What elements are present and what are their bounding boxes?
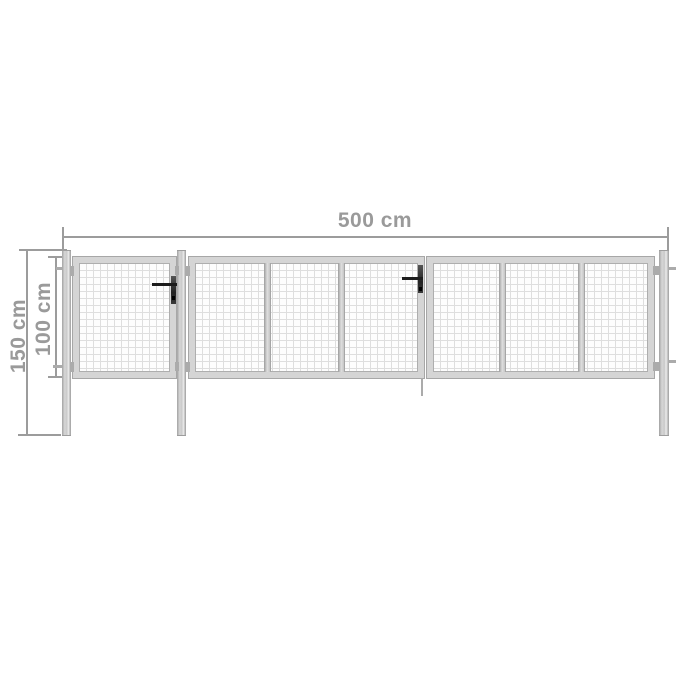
total-height-dimension-tick-bottom [18, 434, 61, 436]
width-dimension-label: 500 cm [295, 210, 455, 232]
gate-vertical-bar [499, 263, 506, 372]
hinge-pin [175, 266, 179, 275]
gate-vertical-bar [264, 263, 271, 372]
gate-post-middle [177, 250, 186, 436]
width-dimension-tick-left [62, 227, 64, 250]
gate-post-right [659, 250, 669, 436]
double-gate-left-leaf [189, 257, 424, 378]
double-gate-right-leaf [427, 257, 654, 378]
hinge-pin [175, 362, 179, 371]
double-gate-handle [402, 277, 423, 280]
hinge-pin [653, 362, 659, 371]
hinge-pin [56, 267, 63, 270]
width-dimension-line [63, 236, 669, 238]
hinge-pin [71, 362, 74, 372]
hinge-pin [71, 266, 74, 276]
hinge-pin [668, 360, 676, 363]
double-gate-keyhole [419, 287, 422, 291]
pedestrian-gate-handle [152, 283, 177, 286]
total-height-dimension-tick-top [19, 249, 67, 251]
pedestrian-gate-leaf [73, 257, 176, 378]
hinge-pin [653, 266, 659, 275]
pedestrian-gate-keyhole [172, 296, 175, 300]
total-height-dimension-line [26, 250, 28, 436]
gate-vertical-bar [578, 263, 585, 372]
gate-height-dimension-line [55, 257, 57, 378]
hinge-pin [186, 362, 190, 372]
hinge-pin [668, 267, 676, 270]
hinge-pin [53, 365, 63, 368]
product-dimension-diagram: 500 cm 150 cm 100 cm [0, 0, 685, 685]
width-dimension-tick-right [667, 227, 669, 250]
gate-vertical-bar [338, 263, 345, 372]
gate-height-dimension-label: 100 cm [33, 277, 55, 361]
gate-post-left [62, 250, 71, 436]
double-gate-drop-rod [421, 378, 423, 396]
hinge-pin [186, 266, 190, 276]
